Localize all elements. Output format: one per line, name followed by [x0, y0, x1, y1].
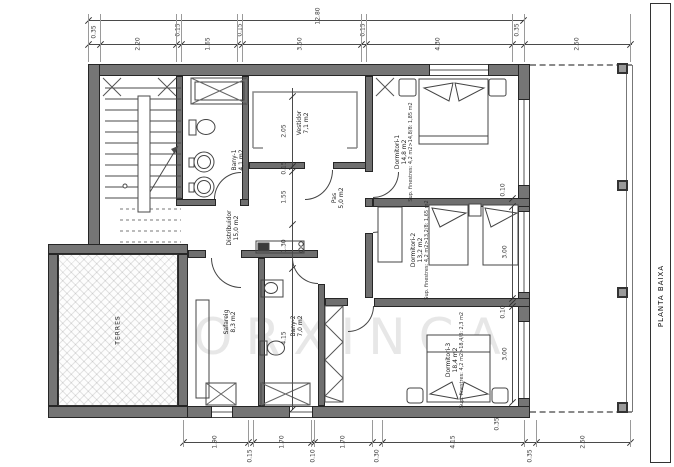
- extension-line: [630, 14, 631, 62]
- dim-label: 3.00: [502, 245, 509, 258]
- dim-label: 0.10: [500, 305, 507, 318]
- extension-line: [181, 14, 182, 62]
- room-area: 4,1 m2: [238, 149, 245, 170]
- extension-line: [314, 420, 315, 447]
- dim-label: 0.15: [281, 161, 288, 174]
- floor-plan-sheet: PORXINCA TERRES: [0, 0, 674, 467]
- room-label-pas: Pas 5,0 m2: [331, 187, 345, 208]
- room-label-vestidor: Vestidor 7,1 m2: [296, 111, 310, 135]
- room-area: 14,8 m2: [401, 140, 408, 165]
- extension-line: [237, 14, 238, 62]
- dim-label: 0.15: [247, 449, 254, 462]
- room-name: Dormitori-3: [445, 343, 452, 377]
- extension-line: [242, 14, 243, 62]
- extension-line: [361, 14, 362, 62]
- room-label-distribuidor: Distribuidor 15,0 m2: [226, 210, 240, 245]
- dim-label: 4.15: [281, 331, 288, 344]
- dim-line: [183, 442, 630, 443]
- room-label-bany1: Bany-1 4,1 m2: [231, 149, 245, 170]
- dim-line: [512, 206, 513, 298]
- room-name: Bany-2: [290, 315, 297, 336]
- extension-line: [524, 14, 525, 62]
- extension-line: [366, 14, 367, 62]
- room-area: 13,2 m2: [417, 238, 424, 263]
- dim-label-total: 12.80: [315, 7, 322, 24]
- extension-line: [183, 420, 184, 447]
- extension-line: [524, 420, 525, 447]
- room-area: 7,0 m2: [297, 315, 304, 336]
- room-windows-note: Sup. finestres: 4,2 m2>18,4/8: 2,3 m2: [459, 312, 465, 408]
- extension-line: [382, 420, 383, 447]
- extension-line: [176, 14, 177, 62]
- room-name: Dormitori-1: [394, 135, 401, 169]
- extension-line: [100, 14, 101, 62]
- room-windows-note: Sup. finestres: 4,2 m2>13,2/8: 1,65 m2: [424, 200, 430, 299]
- room-label-dormitori3: Dormitori-3 18,4 m2 Sup. finestres: 4,2 …: [445, 312, 465, 408]
- room-area: 8,3 m2: [230, 311, 237, 332]
- extension-line: [536, 420, 537, 447]
- room-name: Distribuidor: [226, 210, 233, 245]
- furniture-linework: [0, 0, 674, 467]
- dim-label: 1.55: [281, 190, 288, 203]
- dim-label: 1.30: [281, 239, 288, 252]
- dormitori2-furniture: [378, 204, 518, 265]
- dim-line: [512, 306, 513, 402]
- room-label-dormitori1: Dormitori-1 14,8 m2 Sup. finestres: 4,2 …: [394, 102, 414, 201]
- extension-line: [630, 420, 631, 447]
- dim-label: 3.00: [502, 347, 509, 360]
- room-name: Bany-1: [231, 149, 238, 170]
- room-label-safareig: Safareig 8,3 m2: [223, 310, 237, 335]
- room-windows-note: Sup. finestres: 4,2 m2>14,8/8: 1,85 m2: [408, 102, 414, 201]
- room-area: 7,1 m2: [303, 112, 310, 133]
- extension-line: [512, 14, 513, 62]
- room-label-dormitori2: Dormitori-2 13,2 m2 Sup. finestres: 4,2 …: [410, 200, 430, 299]
- room-name: Safareig: [223, 310, 230, 335]
- extension-line: [253, 420, 254, 447]
- dim-line: [88, 20, 523, 21]
- extension-line: [248, 420, 249, 447]
- dim-label: 0.35: [494, 417, 501, 430]
- dim-label: 0.35: [514, 23, 521, 36]
- room-area: 18,4 m2: [452, 348, 459, 373]
- dim-label: 2.05: [281, 124, 288, 137]
- room-name: Dormitori-2: [410, 233, 417, 267]
- room-name: Vestidor: [296, 111, 303, 135]
- dim-label: 0.35: [91, 25, 98, 38]
- plan-title: PLANTA BAIXA: [657, 265, 665, 327]
- title-block: PLANTA BAIXA: [650, 3, 671, 463]
- extension-line: [88, 14, 89, 62]
- room-area: 5,0 m2: [338, 187, 345, 208]
- dim-line: [292, 88, 293, 410]
- dormitori1-furniture: [399, 79, 506, 144]
- extension-line: [372, 420, 373, 447]
- dim-label: 0.10: [310, 449, 317, 462]
- extension-line: [311, 420, 312, 447]
- room-name: Pas: [331, 193, 338, 203]
- room-area: 15,0 m2: [233, 216, 240, 241]
- dim-label: 0.35: [527, 449, 534, 462]
- bany1-fixtures: [189, 78, 248, 197]
- dim-label: 0.10: [500, 183, 507, 196]
- dormitori3-wardrobe: [325, 306, 343, 402]
- dim-label: 0.30: [374, 449, 381, 462]
